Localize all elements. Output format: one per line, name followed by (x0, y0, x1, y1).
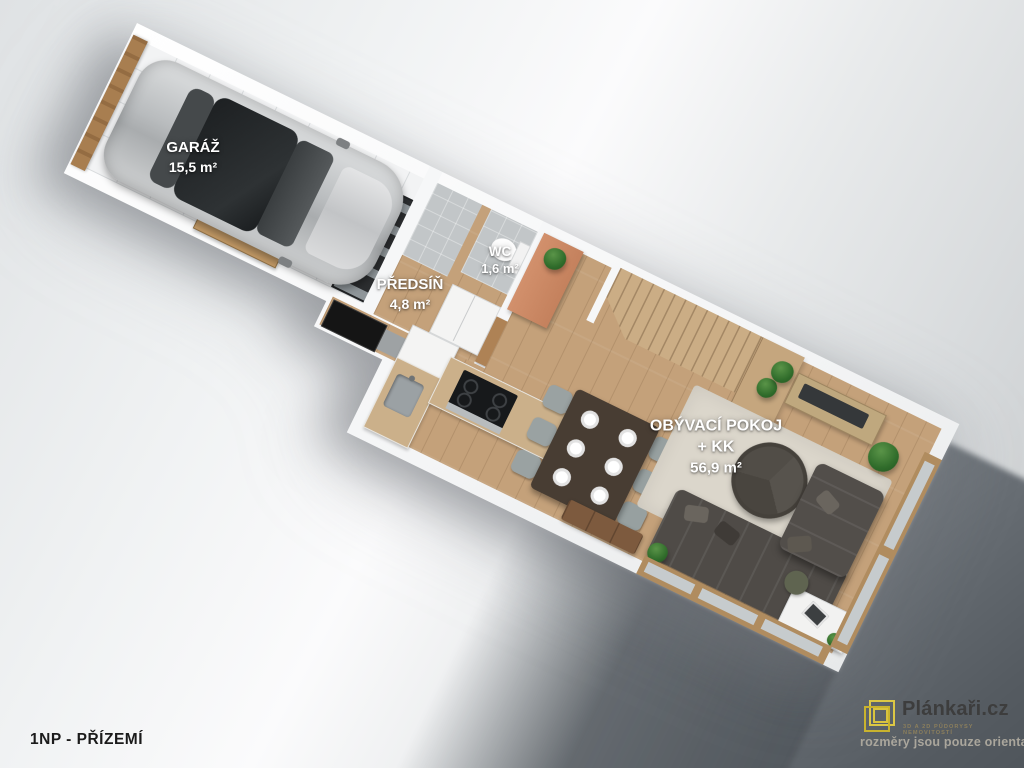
floorplan-render: GARÁŽ 15,5 m² PŘEDSÍŇ 4,8 m² WC 1,6 m² O… (0, 0, 1024, 768)
floor-title: 1NP - PŘÍZEMÍ (30, 731, 143, 749)
hallway-name: PŘEDSÍŇ (377, 275, 444, 295)
logo-text: Plánkaři.cz (902, 698, 1009, 721)
hallway-label: PŘEDSÍŇ 4,8 m² (377, 275, 444, 313)
living-name2: + KK (650, 437, 782, 458)
wc-label: WC 1,6 m² (481, 243, 519, 277)
logo-squares-icon (864, 700, 900, 734)
wc-name: WC (481, 243, 519, 261)
living-area: 56,9 m² (650, 458, 782, 478)
hallway-area: 4,8 m² (377, 295, 444, 313)
garage-name: GARÁŽ (166, 138, 219, 158)
wc-area: 1,6 m² (481, 260, 519, 277)
building-plan (16, 23, 959, 672)
garage-area: 15,5 m² (166, 158, 219, 176)
living-label: OBÝVACÍ POKOJ + KK 56,9 m² (650, 416, 782, 477)
sofa-pillow (787, 535, 812, 553)
sofa-pillow (683, 504, 709, 523)
garage-label: GARÁŽ 15,5 m² (166, 138, 219, 176)
disclaimer-text: rozměry jsou pouze orientační (860, 735, 1020, 749)
living-name: OBÝVACÍ POKOJ (650, 416, 782, 437)
